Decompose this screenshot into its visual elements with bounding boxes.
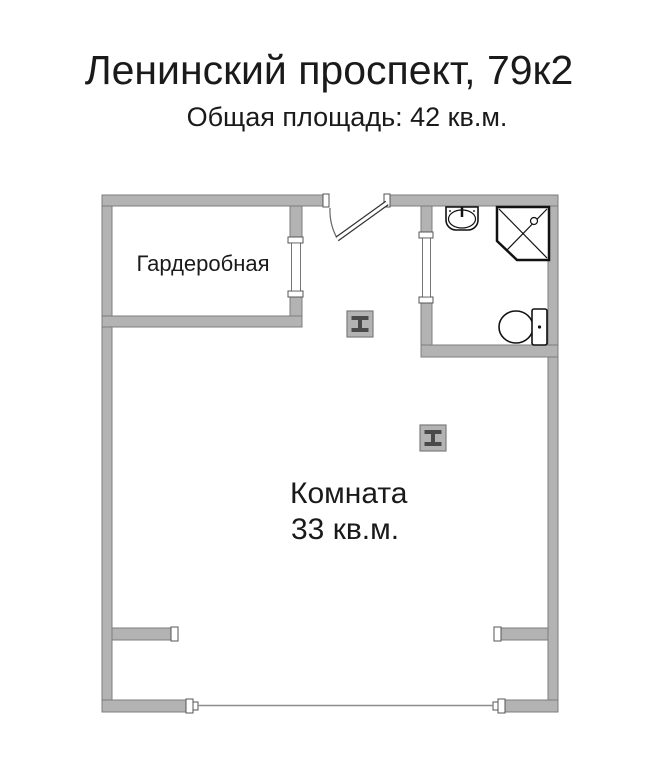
- column-flange-top: [425, 430, 442, 434]
- wardrobe-jamb-bottom: [288, 291, 303, 297]
- wardrobe-label: Гардеробная: [136, 251, 269, 276]
- wall-stub-left: [112, 628, 171, 640]
- bathroom-doorway: [423, 238, 431, 297]
- bathroom-jamb-top: [419, 232, 433, 238]
- wall-bathroom-left-lower: [421, 303, 432, 345]
- window-nub-right: [493, 702, 498, 710]
- floor-plan: Ленинский проспект, 79к2 Общая площадь: …: [0, 0, 659, 768]
- wall-bathroom-bottom: [421, 345, 558, 357]
- wall-top-left-of-entrance: [102, 195, 323, 206]
- wardrobe-doorway: [292, 243, 301, 291]
- column-web: [431, 434, 435, 442]
- wall-bottom-left: [102, 700, 186, 712]
- sink-detail-dot: [449, 210, 451, 212]
- toilet-bowl: [499, 311, 533, 343]
- wardrobe-jamb-top: [288, 237, 303, 243]
- stub-left-cap: [171, 627, 178, 641]
- column-flange-bottom: [425, 442, 442, 446]
- column-web: [358, 320, 362, 328]
- window-nub-left: [193, 702, 198, 710]
- bathroom-jamb-bottom: [419, 297, 433, 303]
- entrance-door-arc: [330, 208, 337, 238]
- balcony-window-icon: [193, 702, 498, 710]
- page-title: Ленинский проспект, 79к2: [85, 47, 574, 93]
- floor-plan-page: Ленинский проспект, 79к2 Общая площадь: …: [0, 0, 659, 768]
- wall-right: [548, 195, 558, 712]
- wall-stub-right: [501, 628, 548, 640]
- sink-icon: [446, 207, 478, 230]
- wall-top-right-of-entrance: [390, 195, 558, 206]
- wall-bottom-right: [505, 700, 558, 712]
- sink-detail-dot: [473, 210, 475, 212]
- main-room-label: Комната: [290, 477, 408, 510]
- shower-head: [531, 218, 538, 225]
- stub-right-cap: [494, 627, 501, 641]
- steel-column-icon: [420, 425, 446, 451]
- bottom-left-cap: [186, 699, 193, 713]
- wall-wardrobe-right-lower: [290, 297, 302, 316]
- wall-wardrobe-bottom: [102, 316, 302, 327]
- entrance-door-icon: [330, 203, 387, 239]
- wall-left: [102, 195, 112, 712]
- wall-bathroom-left-upper: [421, 206, 432, 232]
- wall-wardrobe-right-upper: [290, 206, 302, 237]
- bottom-right-cap: [498, 699, 505, 713]
- main-room-area: 33 кв.м.: [291, 513, 399, 546]
- total-area-subtitle: Общая площадь: 42 кв.м.: [187, 102, 508, 132]
- steel-column-icon: [347, 311, 373, 337]
- entrance-door-leaf: [337, 203, 387, 239]
- column-flange-top: [352, 316, 369, 320]
- entrance-jamb-left: [323, 194, 329, 207]
- shower-icon: [497, 207, 549, 260]
- toilet-button: [538, 325, 541, 328]
- column-flange-bottom: [352, 328, 369, 332]
- toilet-icon: [499, 309, 547, 345]
